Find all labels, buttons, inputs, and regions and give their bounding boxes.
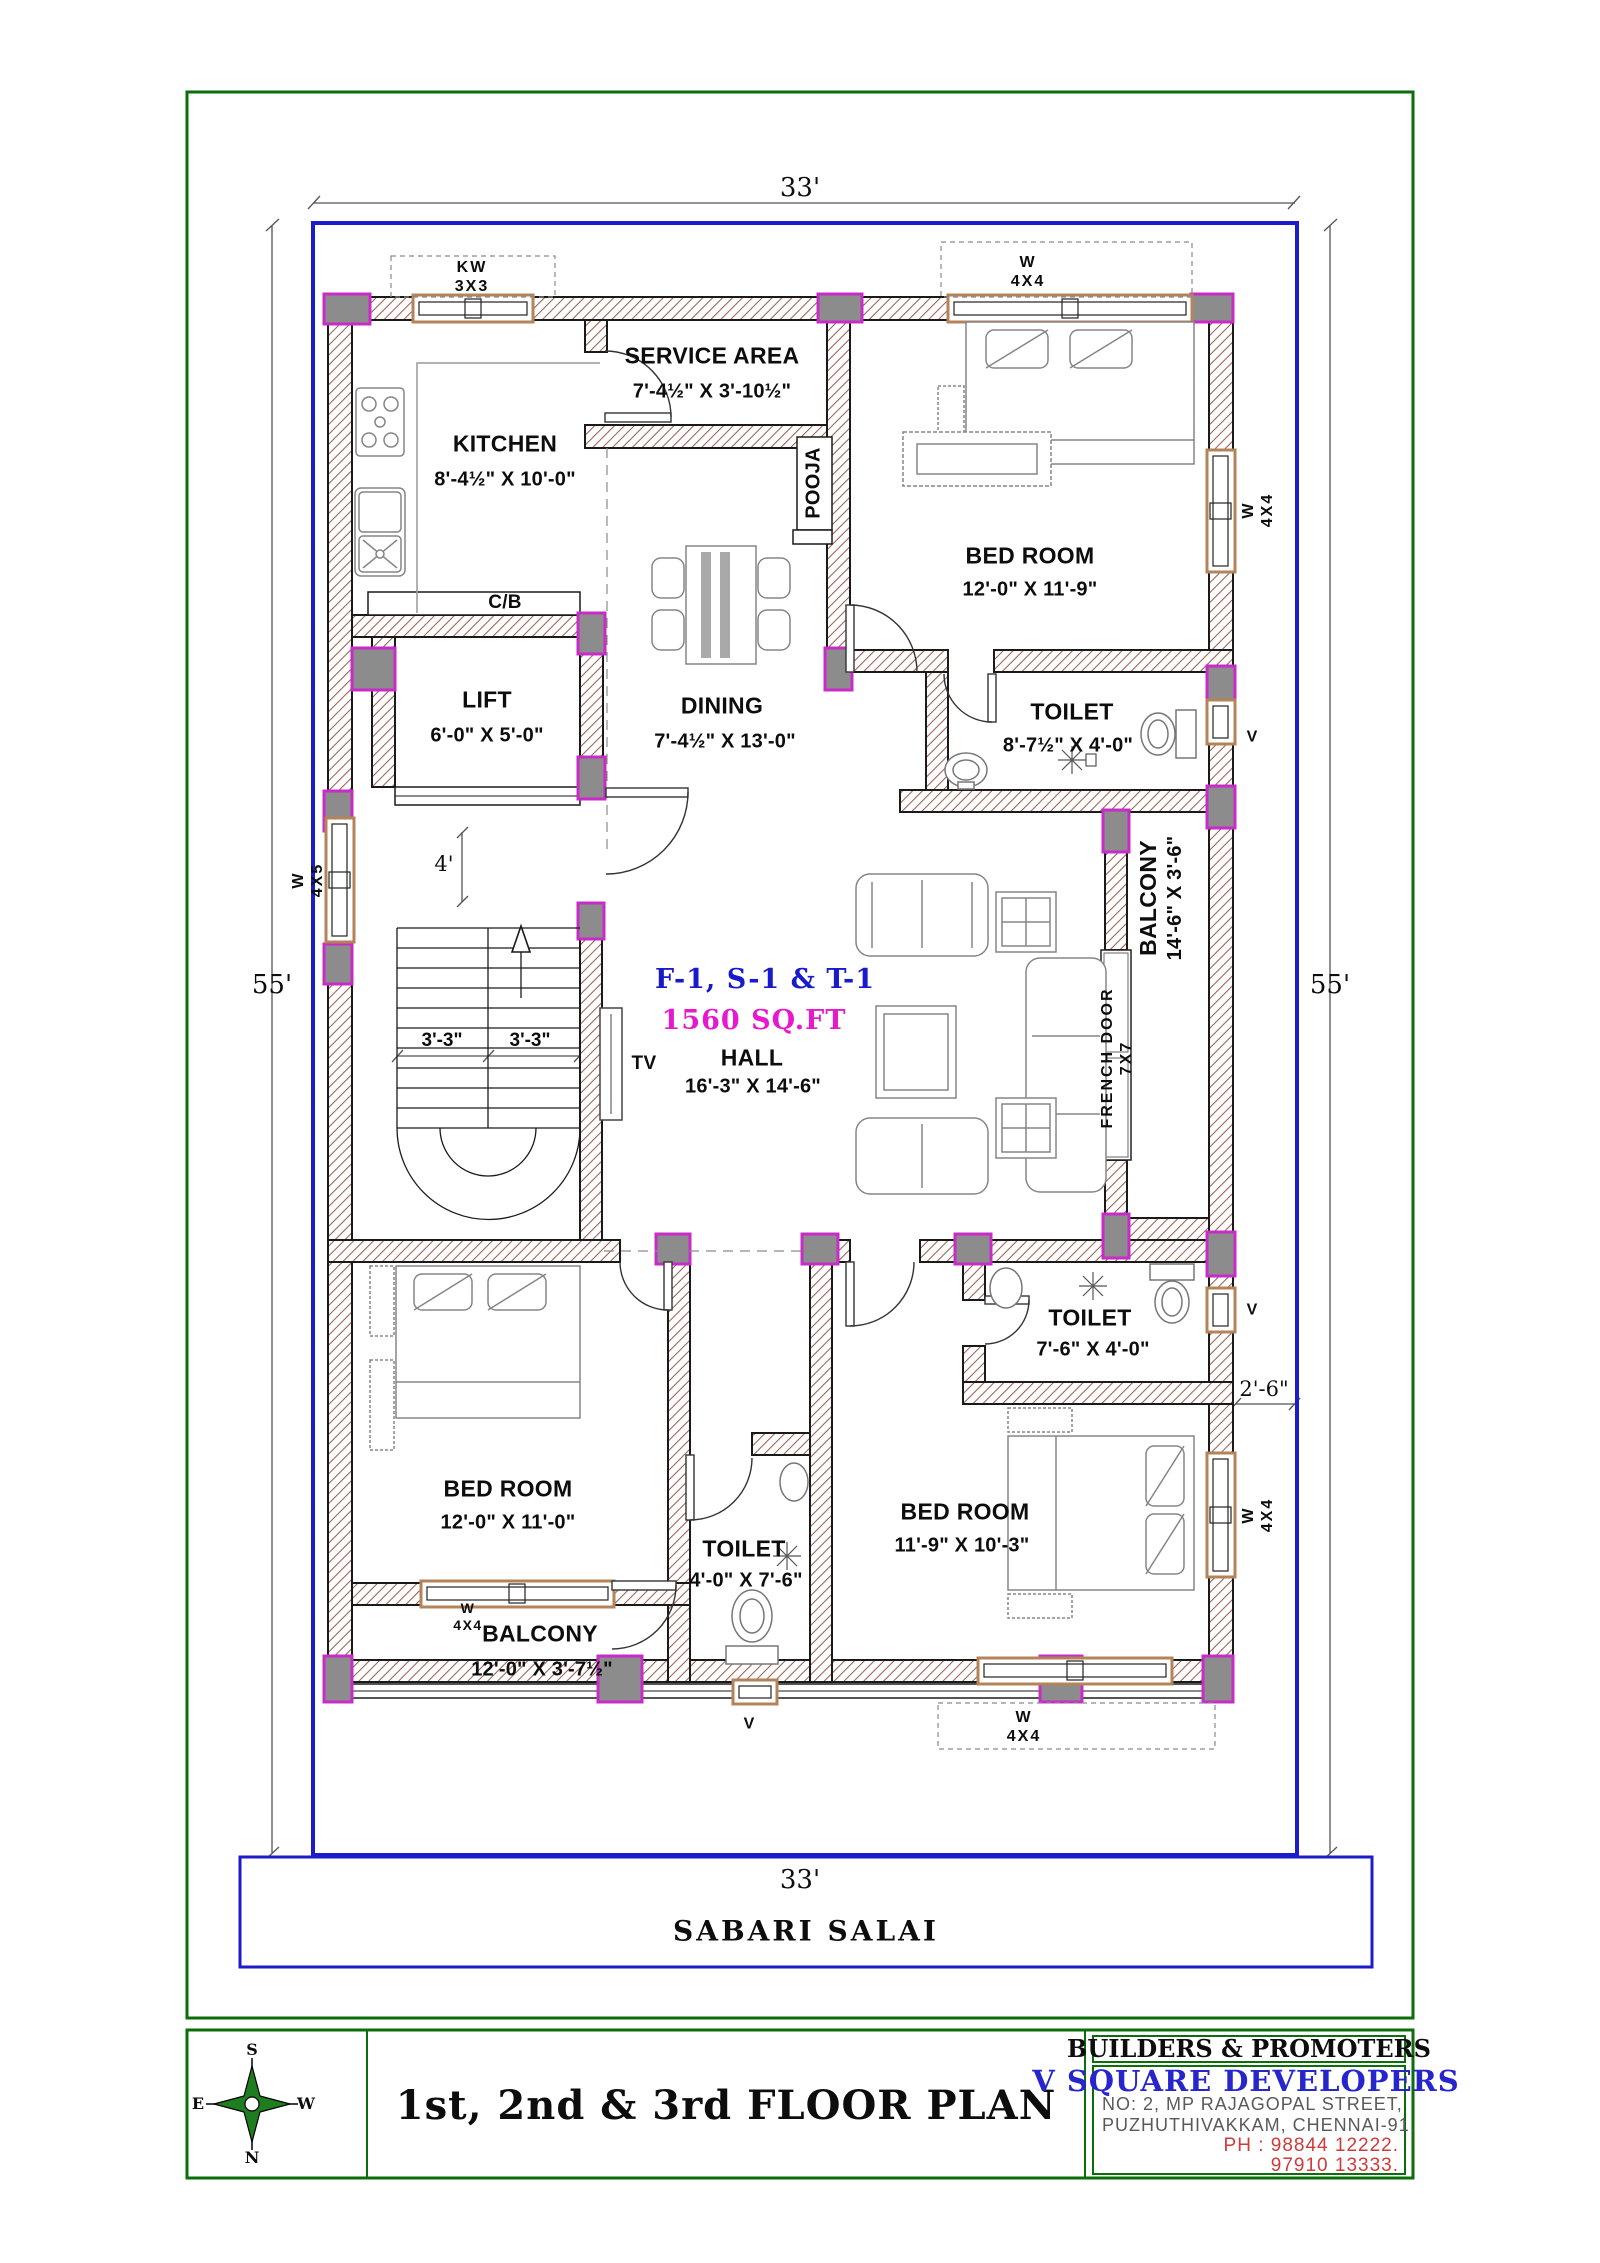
compass-right-letter: W (297, 2094, 315, 2114)
company-phone-line2: 97910 13333. (1271, 2154, 1399, 2178)
company-address-line2: PUZHUTHIVAKKAM, CHENNAI-91. (1102, 2114, 1416, 2137)
bedroom-left-furniture (370, 1266, 580, 1450)
bedroom-top-side-window-label: W 4X4 (1239, 493, 1277, 527)
bedroom-right-label: BED ROOM (901, 1498, 1030, 1527)
bedroom-bottom-window-label: W 4X4 (1007, 1708, 1041, 1746)
dining-furniture (652, 546, 790, 664)
toilet-right-label: TOILET (1048, 1304, 1131, 1333)
vent-label-right: V (1247, 1300, 1260, 1319)
lift-label: LIFT (462, 686, 512, 715)
hall-label: HALL (721, 1044, 784, 1073)
balcony-window-label: W 4X4 (453, 1600, 482, 1634)
service-area-label: SERVICE AREA (625, 342, 800, 371)
toilet-bottom-size: 4'-0" X 7'-6" (689, 1569, 802, 1594)
hall-area-label: 1560 SQ.FT (662, 1004, 847, 1038)
road-name: SABARI SALAI (673, 1914, 939, 1949)
tv-label: TV (632, 1052, 657, 1076)
pooja-label: POOJA (802, 447, 827, 519)
french-door-label: FRENCH DOOR 7X7 (1098, 987, 1136, 1128)
dim-landing: 4' (434, 851, 453, 877)
compass-left-letter: E (192, 2094, 204, 2114)
bedroom-top-label: BED ROOM (966, 542, 1095, 571)
toilet-top-label: TOILET (1030, 698, 1113, 727)
bedroom-left-label: BED ROOM (444, 1475, 573, 1504)
bedroom-top-window-label: W 4X4 (1011, 253, 1045, 291)
compass-icon (206, 2058, 298, 2150)
dim-stair-right: 3'-3" (510, 1029, 551, 1053)
balcony-right-label: BALCONY 14'-6" X 3'-6" (1134, 836, 1188, 961)
hall-size: 16'-3" X 14'-6" (685, 1075, 821, 1100)
toilet-right-size: 7'-6" X 4'-0" (1036, 1338, 1149, 1363)
floor-plan-sheet: 33' 55' 55' 33' 4' 2'-6" 3'-3" 3'-3" KW … (0, 0, 1600, 2263)
dim-left: 55' (252, 969, 292, 1002)
kitchen-label: KITCHEN (453, 430, 557, 459)
company-address-line1: NO: 2, MP RAJAGOPAL STREET, (1102, 2093, 1403, 2116)
kw-name: KW (455, 258, 489, 277)
toilet-bottom-fixtures (726, 1463, 808, 1664)
hall-furniture (856, 874, 1106, 1194)
builders-heading: BUILDERS & PROMOTERS (1067, 2034, 1431, 2064)
kw-size: 3X3 (455, 277, 489, 296)
bedroom-right-size: 11'-9" X 10'-3" (895, 1534, 1030, 1559)
compass-top-letter: S (246, 2040, 258, 2060)
stairs (397, 926, 580, 1220)
dining-size: 7'-4½" X 13'-0" (654, 730, 796, 755)
sheet-title: 1st, 2nd & 3rd FLOOR PLAN (396, 2081, 1057, 2131)
compass-bottom-letter: N (245, 2148, 260, 2168)
kitchen-window-label: KW 3X3 (455, 258, 489, 296)
dining-label: DINING (681, 692, 763, 721)
bedroom-left-size: 12'-0" X 11'-0" (441, 1511, 576, 1536)
dim-right: 55' (1310, 969, 1350, 1002)
toilet-bottom-label: TOILET (702, 1535, 785, 1564)
cupboard-label: C/B (488, 591, 522, 615)
kitchen-size: 8'-4½" X 10'-0" (434, 468, 576, 493)
service-area-size: 7'-4½" X 3'-10½" (633, 380, 791, 405)
dim-offset-right: 2'-6" (1239, 1376, 1288, 1402)
tv-unit (600, 1008, 622, 1120)
balcony-bottom-label: BALCONY (482, 1620, 598, 1649)
lift-size: 6'-0" X 5'-0" (430, 724, 543, 749)
dim-stair-left: 3'-3" (422, 1029, 463, 1053)
balcony-bottom-size: 12'-0" X 3'-7½" (471, 1658, 613, 1683)
bedroom-top-size: 12'-0" X 11'-9" (963, 578, 1098, 603)
vent-label-bottom: V (744, 1714, 757, 1733)
vent-label-top: V (1247, 727, 1260, 746)
stair-window-label: W 4X5 (289, 863, 327, 897)
dim-top: 33' (780, 172, 820, 205)
dim-bottom: 33' (780, 1864, 820, 1897)
bedroom-right-side-window-label: W 4X4 (1239, 1498, 1277, 1532)
bedroom-right-furniture (1008, 1408, 1194, 1618)
hall-unit-label: F-1, S-1 & T-1 (655, 963, 875, 997)
bedroom-top-furniture (903, 322, 1194, 486)
toilet-top-size: 8'-7½" X 4'-0" (1003, 734, 1133, 759)
